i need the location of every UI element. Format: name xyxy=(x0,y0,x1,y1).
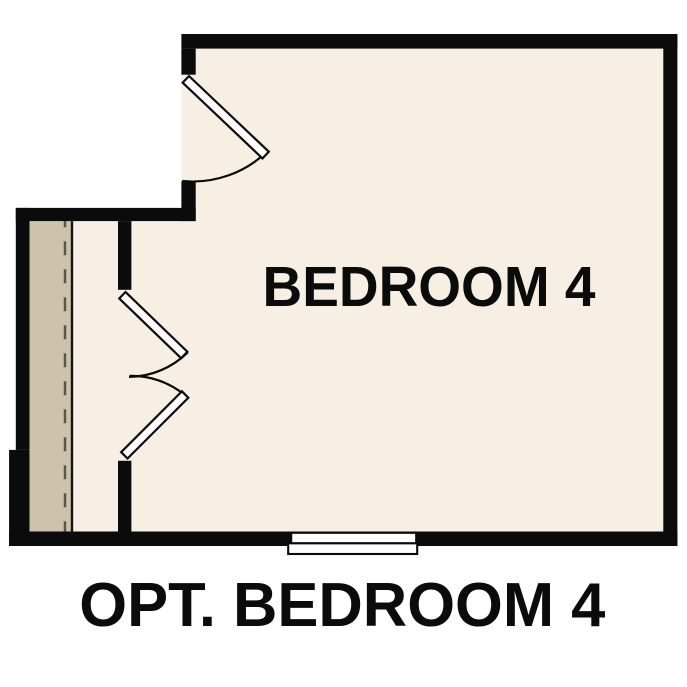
svg-text:OPT. BEDROOM 4: OPT. BEDROOM 4 xyxy=(79,571,606,640)
svg-text:BEDROOM 4: BEDROOM 4 xyxy=(263,255,597,318)
